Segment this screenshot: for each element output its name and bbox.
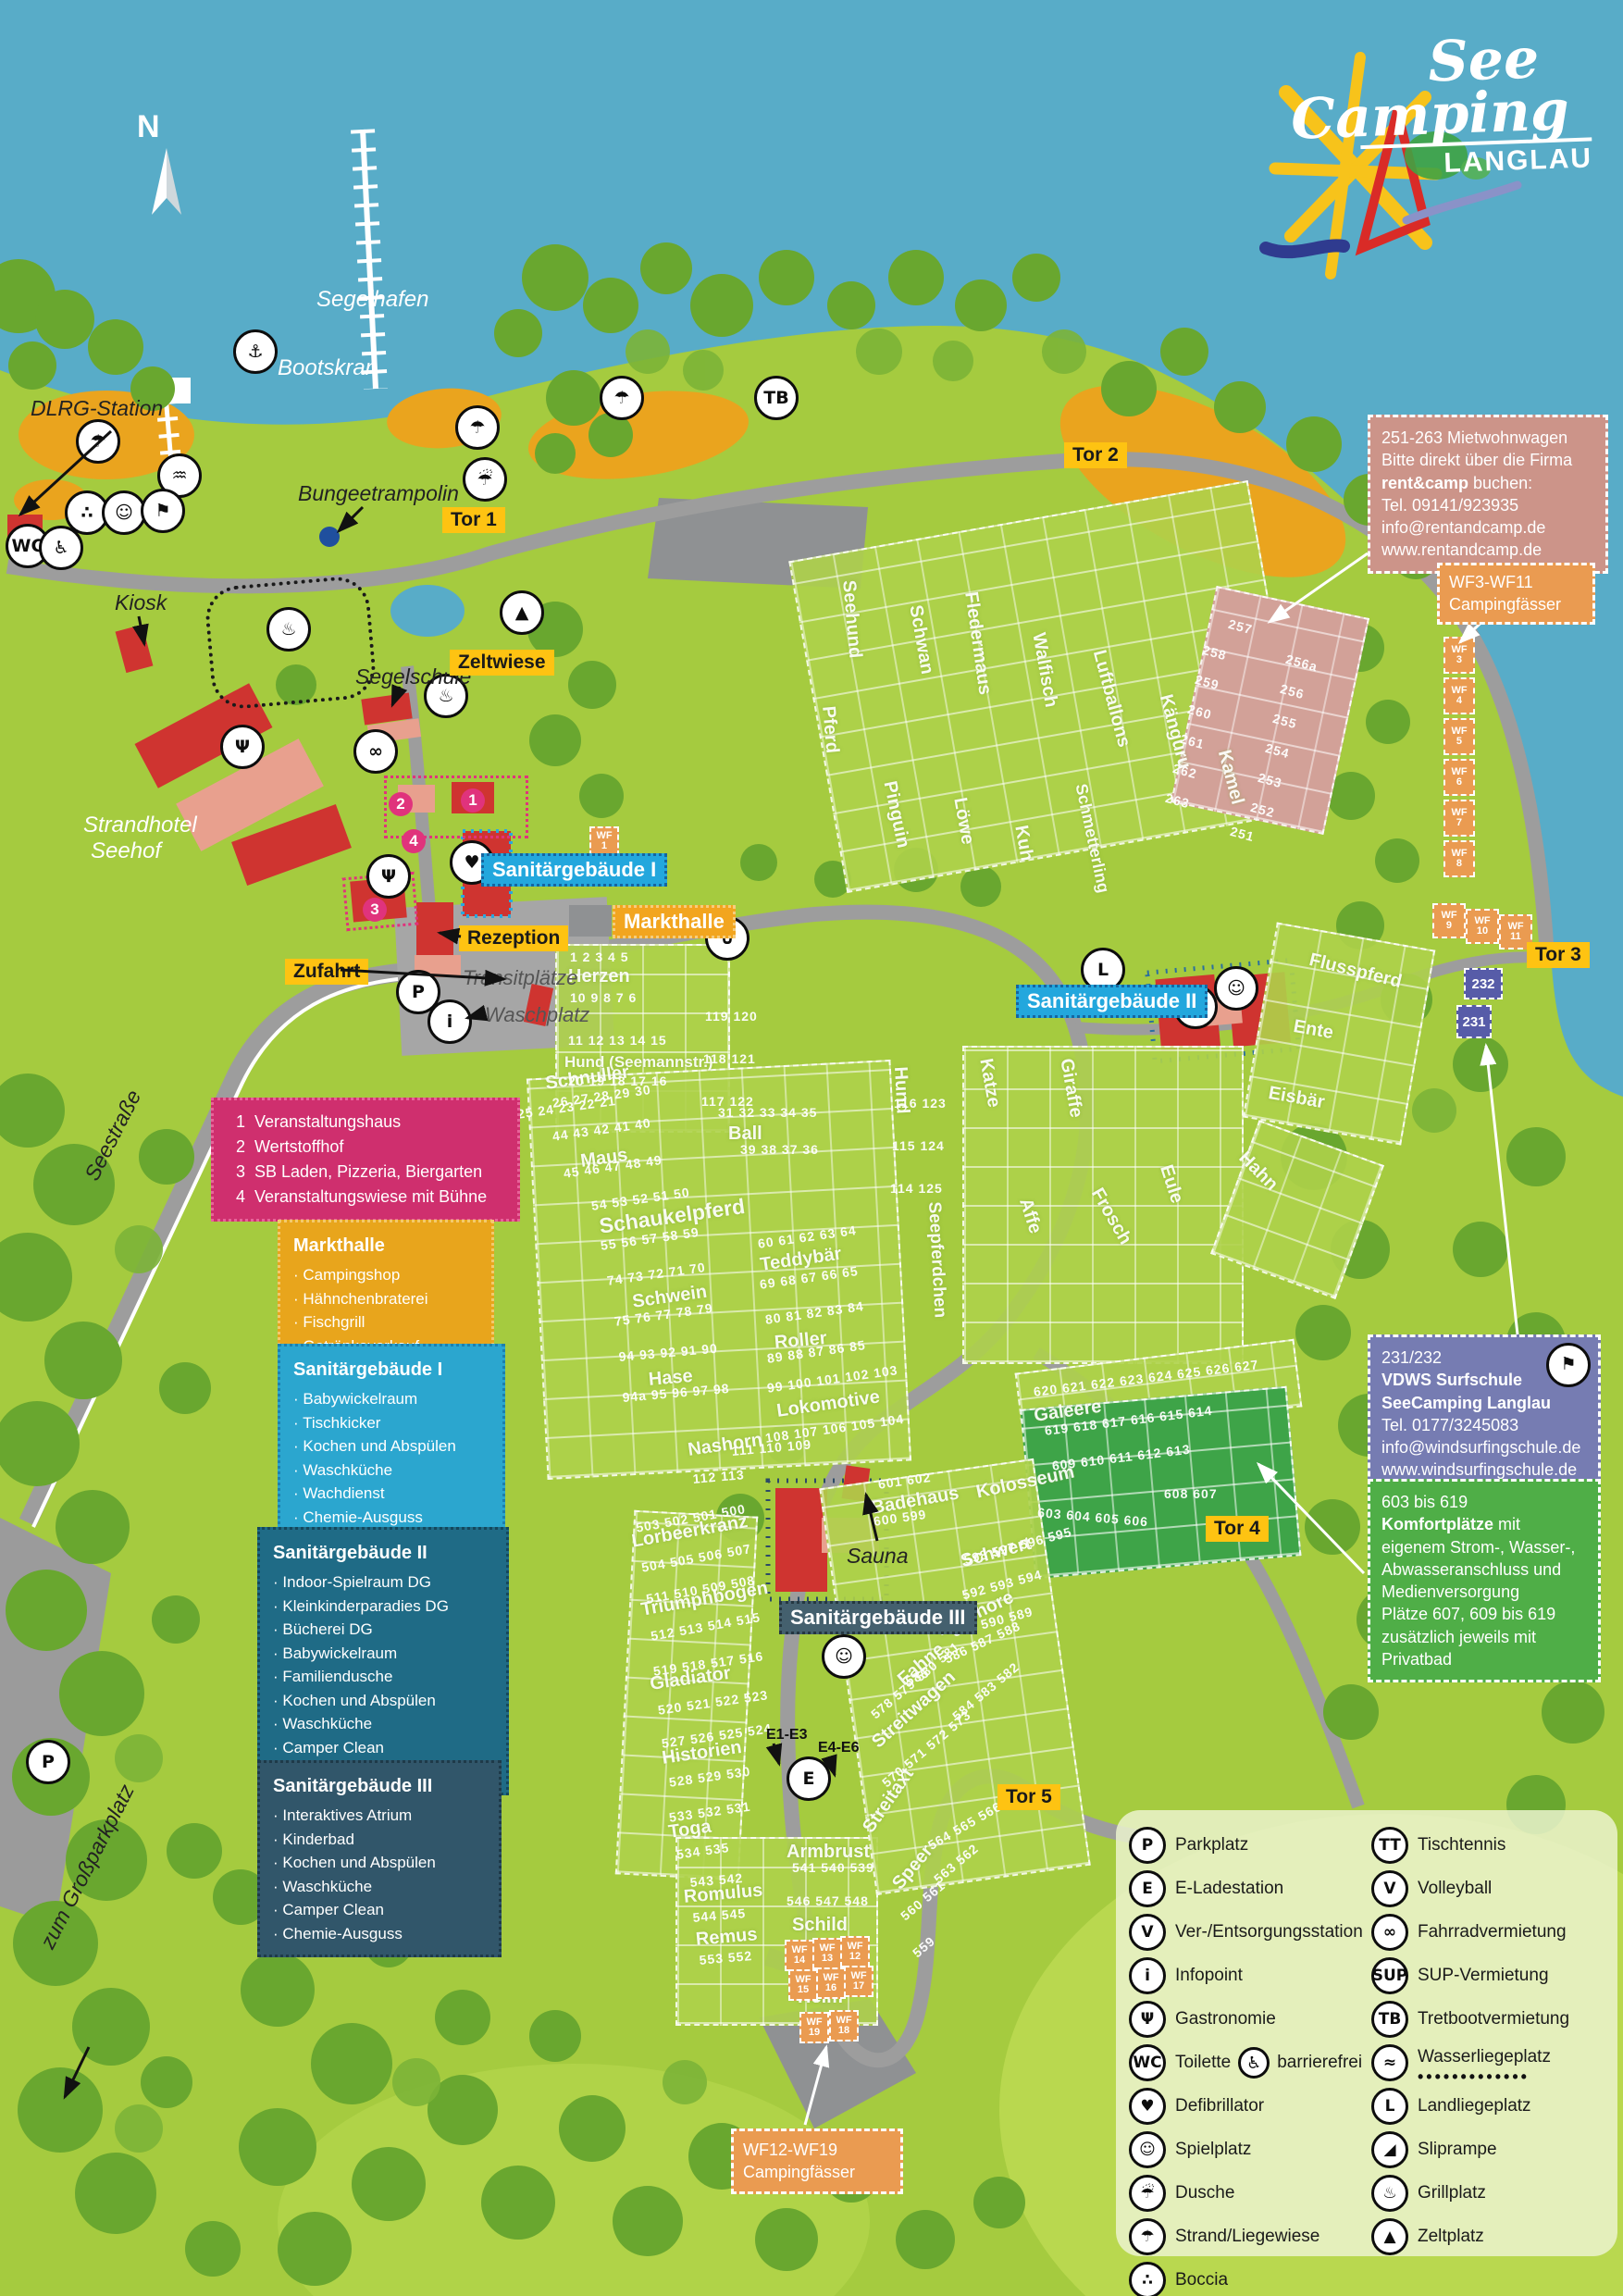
- legend-item: E E-Ladestation: [1129, 1870, 1371, 1907]
- plot-number: 1 2 3 4 5: [570, 949, 629, 964]
- plot-number: 117 122: [701, 1094, 754, 1109]
- wf3-wf11-infobox: WF3-WF11 Campingfässer: [1437, 563, 1595, 625]
- legend-icon: ☂: [1129, 2218, 1166, 2255]
- campingfass-plot: WF 15: [788, 1969, 818, 2001]
- sanitaer2-legend-item: Bücherei DG: [273, 1618, 493, 1642]
- map-icon: ▲: [500, 590, 544, 635]
- campingfass-plot: WF 17: [844, 1966, 873, 1997]
- sanitaer1-legend-item: Babywickelraum: [293, 1387, 489, 1411]
- legend-label: Toilette: [1175, 2053, 1231, 2073]
- legend-label: Sliprampe: [1418, 2140, 1497, 2160]
- sanitaer2-legend-title: Sanitärgebäude II: [273, 1539, 493, 1567]
- surfschule-infobox: ⚑ 231/232 VDWS Surfschule SeeCamping Lan…: [1368, 1334, 1601, 1494]
- legend-icon: P: [1129, 1827, 1166, 1864]
- sup-icon: ⚑: [1546, 1343, 1591, 1387]
- map-icon: ♨: [266, 607, 311, 652]
- rentcamp-line: Tel. 09141/923935: [1381, 494, 1594, 516]
- campingfass-plot: WF 19: [799, 2012, 829, 2043]
- markthalle-badge: Markthalle: [613, 905, 736, 938]
- legend-item: ∴ Boccia: [1129, 2262, 1371, 2296]
- markthalle-legend-title: Markthalle: [293, 1232, 478, 1260]
- legend-label: Landliegeplatz: [1418, 2096, 1531, 2116]
- legend-item: ♥ Defibrillator: [1129, 2088, 1371, 2125]
- surfschule-plot: 232: [1464, 968, 1503, 999]
- legend-icon: V: [1129, 1914, 1166, 1951]
- plot-number: 546 547 548: [787, 1893, 869, 1908]
- plot-number: 116 123: [894, 1096, 947, 1111]
- legend-label: Spielplatz: [1175, 2140, 1251, 2160]
- markthalle-legend-item: Hähnchenbraterei: [293, 1287, 478, 1311]
- campingfass-plot: WF 1: [589, 826, 619, 856]
- plot-number: 112 113: [692, 1467, 745, 1486]
- sanitaer1-legend-item: Kochen und Abspülen: [293, 1434, 489, 1458]
- sanitaer2-legend-item: Indoor-Spielraum DG: [273, 1570, 493, 1595]
- wf12-line: Campingfässer: [743, 2161, 891, 2183]
- campingfass-plot: WF 3: [1443, 637, 1475, 674]
- map-icon: Ψ: [366, 854, 411, 899]
- legend-item: ☔ Dusche: [1129, 2175, 1371, 2212]
- legend-item: ≈ Wasserliegeplatz •••••••••••••: [1371, 2044, 1614, 2081]
- map-label: Strandhotel: [83, 813, 197, 838]
- sanitaer3-legend-item: Chemie-Ausguss: [273, 1922, 486, 1946]
- plot-number: 118 121: [703, 1051, 756, 1066]
- legend-label: Parkplatz: [1175, 1835, 1248, 1855]
- gate-badge: Tor 2: [1064, 442, 1127, 468]
- legend-icon: L: [1371, 2088, 1408, 2125]
- campingfass-plot: WF 18: [829, 2010, 859, 2042]
- sanitaer2-legend-item: Kochen und Abspülen: [273, 1689, 493, 1713]
- map-icon: ☺: [822, 1634, 866, 1679]
- legend-icon: ∴: [1129, 2262, 1166, 2296]
- rentcamp-line: info@rentandcamp.de: [1381, 516, 1594, 539]
- map-icon: ♿: [39, 526, 83, 570]
- legend-extra-label: barrierefrei: [1277, 2053, 1362, 2073]
- legend-label: Dusche: [1175, 2183, 1234, 2203]
- numbered-legend-item: 2Wertstoffhof: [227, 1135, 504, 1160]
- gate-badge: Tor 1: [442, 507, 505, 533]
- campingfass-plot: WF 12: [840, 1936, 870, 1967]
- map-label: Waschplatz: [485, 1003, 589, 1027]
- sanitaer3-legend-item: Kochen und Abspülen: [273, 1851, 486, 1875]
- map-label: Segelhafen: [316, 287, 428, 313]
- sanitaer1-legend-item: Waschküche: [293, 1458, 489, 1483]
- legend-label: E-Ladestation: [1175, 1879, 1283, 1899]
- map-icon: P: [26, 1740, 70, 1784]
- sanitaer2-legend-item: Kleinkinderparadies DG: [273, 1595, 493, 1619]
- sanitaer2-legend-item: Familiendusche: [273, 1665, 493, 1689]
- legend-icon: ♥: [1129, 2088, 1166, 2125]
- plot-number: 119 120: [705, 1009, 758, 1024]
- rentcamp-line: rent&camp buchen:: [1381, 472, 1594, 494]
- dotted-line: •••••••••••••: [1418, 2075, 1614, 2079]
- legend-label: Ver-/Entsorgungsstation: [1175, 1922, 1363, 1942]
- numbered-marker: 2: [389, 792, 413, 816]
- legend-label: SUP-Vermietung: [1418, 1966, 1549, 1986]
- legend-icon: E: [1129, 1870, 1166, 1907]
- place-badge: Rezeption: [459, 925, 568, 951]
- plot-number: 559: [910, 1933, 937, 1960]
- plot-number: 114 125: [890, 1181, 943, 1196]
- numbered-marker: 4: [402, 829, 426, 853]
- legend-item: SUP SUP-Vermietung: [1371, 1957, 1614, 1994]
- legend-item: ☺ Spielplatz: [1129, 2131, 1371, 2168]
- wf12-wf19-infobox: WF12-WF19 Campingfässer: [731, 2128, 903, 2194]
- legend-icon: ☔: [1129, 2175, 1166, 2212]
- legend-label: Infopoint: [1175, 1966, 1243, 1986]
- plot-number: 608 607: [1164, 1486, 1218, 1501]
- legend-item: L Landliegeplatz: [1371, 2088, 1614, 2125]
- e-plot-label: E1-E3: [766, 1727, 807, 1744]
- sanitaer3-legend-item: Camper Clean: [273, 1898, 486, 1922]
- logo-camping: Camping: [1290, 81, 1597, 147]
- legend-item: Ψ Gastronomie: [1129, 2001, 1371, 2038]
- legend-icon: ▲: [1371, 2218, 1408, 2255]
- sanitaer2-legend: Sanitärgebäude II Indoor-Spielraum DGKle…: [257, 1527, 509, 1795]
- komfort-line: zusätzlich jeweils mit: [1381, 1626, 1587, 1648]
- legend-label: Fahrradvermietung: [1418, 1922, 1567, 1942]
- markthalle-legend-item: Fischgrill: [293, 1310, 478, 1334]
- legend-label: Defibrillator: [1175, 2096, 1264, 2116]
- legend-icon: ♨: [1371, 2175, 1408, 2212]
- wf3-line: WF3-WF11: [1449, 571, 1583, 593]
- map-label: Sauna: [847, 1544, 909, 1569]
- legend-icon: ∞: [1371, 1914, 1408, 1951]
- legend-item: ∞ Fahrradvermietung: [1371, 1914, 1614, 1951]
- komfort-line: Plätze 607, 609 bis 619: [1381, 1603, 1587, 1625]
- map-label: Transitplätze: [463, 966, 577, 990]
- legend-item: ▲ Zeltplatz: [1371, 2218, 1614, 2255]
- surfschule-plot: 231: [1456, 1005, 1492, 1038]
- legend-icon: TB: [1371, 2001, 1408, 2038]
- plot-number: 39 38 37 36: [740, 1142, 819, 1157]
- komfort-line: Privatbad: [1381, 1648, 1587, 1670]
- place-badge: Zufahrt: [285, 959, 368, 985]
- seecamping-langlau-map: HerzenHund (Seemannstr.)SchnullerMausBal…: [0, 0, 1623, 2296]
- plot-number: 541 540 539: [792, 1860, 874, 1875]
- map-icon: ∞: [353, 729, 398, 774]
- e-plot-label: E4-E6: [818, 1740, 859, 1756]
- sanitaer2-legend-item: Babywickelraum: [273, 1642, 493, 1666]
- map-icon: i: [427, 999, 472, 1044]
- numbered-legend-item: 1Veranstaltungshaus: [227, 1110, 504, 1135]
- sanitaer2-legend-item: Camper Clean: [273, 1736, 493, 1760]
- sanitaer1-legend-item: Chemie-Ausguss: [293, 1506, 489, 1530]
- street-label: Schild: [792, 1915, 848, 1936]
- map-icon: ☂: [455, 405, 500, 450]
- legend-item: ♨ Grillplatz: [1371, 2175, 1614, 2212]
- barrierefrei-icon: ♿: [1238, 2047, 1270, 2079]
- map-icon: ⚓: [233, 329, 278, 374]
- sanitaer3-legend-item: Waschküche: [273, 1875, 486, 1899]
- legend-item: ☂ Strand/Liegewiese: [1129, 2218, 1371, 2255]
- komfort-line: eigenem Strom-, Wasser-,: [1381, 1536, 1587, 1558]
- legend-label: Grillplatz: [1418, 2183, 1486, 2203]
- legend-icon: V: [1371, 1870, 1408, 1907]
- street-label: Pferd: [817, 705, 842, 754]
- north-arrow: N: [137, 109, 160, 145]
- plot-number: 251: [1229, 824, 1257, 844]
- legend-icon: ☺: [1129, 2131, 1166, 2168]
- wf12-line: WF12-WF19: [743, 2139, 891, 2161]
- sanitaer3-legend-item: Kinderbad: [273, 1828, 486, 1852]
- site-logo: See Camping LANGLAU: [1288, 31, 1598, 184]
- legend-icon: ≈: [1371, 2044, 1408, 2081]
- legend-item: ◢ Sliprampe: [1371, 2131, 1614, 2168]
- surf-line: info@windsurfingschule.de: [1381, 1436, 1587, 1458]
- numbered-legend-item: 4Veranstaltungswiese mit Bühne: [227, 1185, 504, 1210]
- legend-label: Boccia: [1175, 2270, 1228, 2290]
- surf-line: SeeCamping Langlau: [1381, 1392, 1587, 1414]
- campingfass-plot: WF 4: [1443, 677, 1475, 714]
- map-icon: Ψ: [220, 725, 265, 769]
- map-icon: TB: [754, 376, 799, 420]
- plot-number: 11 12 13 14 15: [568, 1033, 667, 1048]
- rentcamp-line: Bitte direkt über die Firma: [1381, 449, 1594, 471]
- campingfass-plot: WF 13: [812, 1938, 842, 1969]
- legend-label: Tischtennis: [1418, 1835, 1505, 1855]
- gate-badge: Tor 3: [1527, 942, 1590, 968]
- campingfass-plot: WF 10: [1466, 909, 1499, 944]
- legend-item: TT Tischtennis: [1371, 1827, 1614, 1864]
- numbered-marker: 3: [363, 898, 387, 922]
- markthalle-legend-item: Campingshop: [293, 1263, 478, 1287]
- legend-item: V Volleyball: [1371, 1870, 1614, 1907]
- campingfass-plot: WF 8: [1443, 840, 1475, 877]
- legend-item: i Infopoint: [1129, 1957, 1371, 1994]
- street-label: Seepferdchen: [923, 1201, 950, 1319]
- sanitaer1-legend-title: Sanitärgebäude I: [293, 1356, 489, 1384]
- map-label: Bootskran: [278, 355, 378, 381]
- numbered-legend: 1Veranstaltungshaus2Wertstoffhof3SB Lade…: [211, 1098, 520, 1222]
- map-label: DLRG-Station: [31, 396, 163, 421]
- sanitaer2-legend-item: Waschküche: [273, 1712, 493, 1736]
- komfort-line: 603 bis 619: [1381, 1491, 1587, 1513]
- map-label: Bungeetrampolin: [298, 481, 459, 506]
- legend-icon: ◢: [1371, 2131, 1408, 2168]
- legend-panel: P Parkplatz E E-Ladestation: [1116, 1810, 1617, 2256]
- surf-line: Tel. 0177/3245083: [1381, 1414, 1587, 1436]
- legend-icon: Ψ: [1129, 2001, 1166, 2038]
- legend-label: Wasserliegeplatz: [1418, 2047, 1551, 2067]
- road-label: Seestraße: [80, 1086, 146, 1185]
- komfort-line: Komfortplätze mit: [1381, 1513, 1587, 1535]
- map-icon: ☔: [463, 457, 507, 502]
- map-icon: ☂: [76, 419, 120, 464]
- map-icon: ☺: [1214, 966, 1258, 1011]
- legend-icon: i: [1129, 1957, 1166, 1994]
- map-label: Kiosk: [115, 590, 167, 615]
- komfortplaetze-infobox: 603 bis 619 Komfortplätze mit eigenem St…: [1368, 1479, 1601, 1682]
- legend-label: Tretbootvermietung: [1418, 2009, 1569, 2029]
- campingfass-plot: WF 16: [816, 1967, 846, 1999]
- legend-label: Zeltplatz: [1418, 2227, 1484, 2247]
- map-icon: ⚑: [141, 489, 185, 533]
- legend-icon: SUP: [1371, 1957, 1408, 1994]
- komfort-line: Medienversorgung: [1381, 1581, 1587, 1603]
- legend-item: P Parkplatz: [1129, 1827, 1371, 1864]
- legend-item: WC Toilette ♿ barrierefrei: [1129, 2044, 1371, 2081]
- rentcamp-infobox: 251-263 Mietwohnwagen Bitte direkt über …: [1368, 415, 1608, 574]
- gate-badge: Tor 5: [997, 1784, 1060, 1810]
- sanitaer-badge: Sanitärgebäude III: [779, 1601, 977, 1634]
- legend-label: Strand/Liegewiese: [1175, 2227, 1319, 2247]
- map-label: Seehof: [91, 838, 161, 864]
- rentcamp-line: www.rentandcamp.de: [1381, 539, 1594, 561]
- sanitaer1-legend-item: Tischkicker: [293, 1411, 489, 1435]
- legend-item: V Ver-/Entsorgungsstation: [1129, 1914, 1371, 1951]
- place-badge: Zeltwiese: [450, 650, 554, 676]
- rentcamp-line: 251-263 Mietwohnwagen: [1381, 427, 1594, 449]
- campingfass-plot: WF 6: [1443, 759, 1475, 796]
- legend-item: TB Tretbootvermietung: [1371, 2001, 1614, 2038]
- sanitaer1-legend: Sanitärgebäude I BabywickelraumTischkick…: [278, 1344, 505, 1541]
- road-label: zum Großparkplatz: [35, 1781, 140, 1954]
- campingfass-plot: WF 9: [1432, 903, 1466, 938]
- sanitaer-badge: Sanitärgebäude I: [481, 853, 667, 887]
- sanitaer3-legend-item: Interaktives Atrium: [273, 1804, 486, 1828]
- legend-label: Gastronomie: [1175, 2009, 1276, 2029]
- legend-icon: WC: [1129, 2044, 1166, 2081]
- campingfass-plot: WF 14: [785, 1940, 814, 1971]
- wf3-line: Campingfässer: [1449, 593, 1583, 615]
- plot-number: 115 124: [892, 1138, 945, 1153]
- campingfass-plot: WF 7: [1443, 800, 1475, 837]
- legend-icon: TT: [1371, 1827, 1408, 1864]
- legend-label: Volleyball: [1418, 1879, 1492, 1899]
- numbered-legend-item: 3SB Laden, Pizzeria, Biergarten: [227, 1160, 504, 1185]
- komfort-line: Abwasseranschluss und: [1381, 1558, 1587, 1581]
- sanitaer1-legend-item: Wachdienst: [293, 1482, 489, 1506]
- sanitaer3-legend: Sanitärgebäude III Interaktives AtriumKi…: [257, 1760, 502, 1957]
- gate-badge: Tor 4: [1206, 1516, 1269, 1542]
- sanitaer3-legend-title: Sanitärgebäude III: [273, 1772, 486, 1800]
- sanitaer-badge: Sanitärgebäude II: [1016, 985, 1208, 1018]
- numbered-marker: 1: [461, 788, 485, 813]
- campingfass-plot: WF 5: [1443, 718, 1475, 755]
- map-icon: ☂: [600, 376, 644, 420]
- map-icon: E: [787, 1756, 831, 1801]
- map-icon: ☺: [102, 490, 146, 535]
